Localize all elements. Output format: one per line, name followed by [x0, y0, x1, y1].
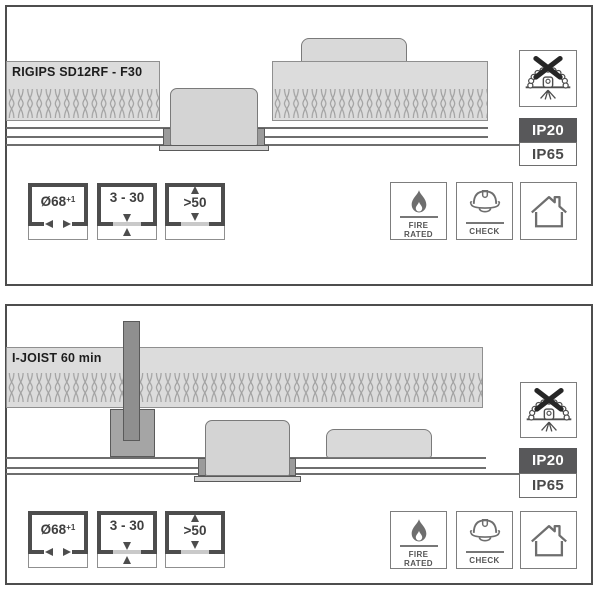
clearance-above-icon: >50 [165, 183, 225, 240]
dim-value: Ø68+1 [28, 194, 88, 209]
downlight-trim-flange [159, 145, 269, 151]
fire-rated-iconbox: FIRERATED [390, 182, 447, 240]
arrow-down-icon [191, 541, 199, 549]
check-label: CHECK [469, 556, 499, 565]
downlight-trim-flange [194, 476, 301, 482]
dim-value: 3 - 30 [97, 518, 157, 533]
insulation-pattern [7, 88, 159, 120]
arrow-right-icon [63, 548, 71, 556]
ip-rating-active-badge: IP20 [519, 448, 577, 473]
dim-value: >50 [165, 195, 225, 210]
arrow-up-icon [191, 514, 199, 522]
check-iconbox: CHECK [456, 511, 513, 569]
insulation-pattern [7, 372, 482, 404]
no-insulation-cover-icon [522, 384, 576, 437]
arrow-up-icon [123, 556, 131, 564]
arrow-up-icon [191, 186, 199, 194]
ceiling-thickness-icon: 3 - 30 [97, 183, 157, 240]
arrow-up-icon [123, 228, 131, 236]
installation-instructions-page: RIGIPS SD12RF - F30 IP20 IP65 Ø [0, 0, 600, 589]
check-label: CHECK [469, 227, 499, 236]
flame-icon [408, 517, 430, 543]
arrow-left-icon [45, 548, 53, 556]
fire-rated-label: RATED [404, 559, 433, 568]
dim-value: Ø68+1 [28, 522, 88, 537]
recessed-downlight-body [205, 420, 290, 476]
arrow-down-icon [123, 542, 131, 550]
ijoist-web [123, 321, 140, 441]
arrow-down-icon [123, 214, 131, 222]
driver-box [301, 38, 407, 63]
flame-icon [408, 188, 430, 214]
indoor-use-iconbox [520, 182, 577, 240]
house-icon [528, 519, 570, 561]
no-insulation-cover-iconbox [520, 382, 577, 438]
fire-rated-iconbox: FIRERATED [390, 511, 447, 569]
no-insulation-cover-icon [521, 52, 575, 105]
fire-rated-label: RATED [404, 230, 433, 239]
indoor-use-iconbox [520, 511, 577, 569]
check-iconbox: CHECK [456, 182, 513, 240]
arrow-left-icon [45, 220, 53, 228]
cutout-diameter-icon: Ø68+1 [28, 183, 88, 240]
ip-rating-inactive-badge: IP65 [519, 473, 577, 498]
no-insulation-cover-iconbox [519, 50, 577, 107]
cutout-diameter-icon: Ø68+1 [28, 511, 88, 568]
ceiling-thickness-icon: 3 - 30 [97, 511, 157, 568]
mounting-clamp [257, 128, 265, 146]
driver-box [326, 429, 432, 458]
construction-label: RIGIPS SD12RF - F30 [12, 65, 142, 79]
house-icon [528, 190, 570, 232]
arrow-right-icon [63, 220, 71, 228]
firefighter-helmet-icon [467, 517, 503, 545]
insulation-pattern [273, 88, 487, 120]
firefighter-helmet-icon [467, 188, 503, 216]
recessed-downlight-body [170, 88, 258, 146]
fire-rated-label: FIRE [404, 221, 433, 230]
ip-rating-active-badge: IP20 [519, 118, 577, 142]
ip-rating-inactive-badge: IP65 [519, 142, 577, 166]
fire-rated-label: FIRE [404, 550, 433, 559]
ceiling-block-right [272, 61, 488, 121]
dim-value: 3 - 30 [97, 190, 157, 205]
arrow-down-icon [191, 213, 199, 221]
clearance-above-icon: >50 [165, 511, 225, 568]
construction-label: I-JOIST 60 min [12, 351, 102, 365]
dim-value: >50 [165, 523, 225, 538]
